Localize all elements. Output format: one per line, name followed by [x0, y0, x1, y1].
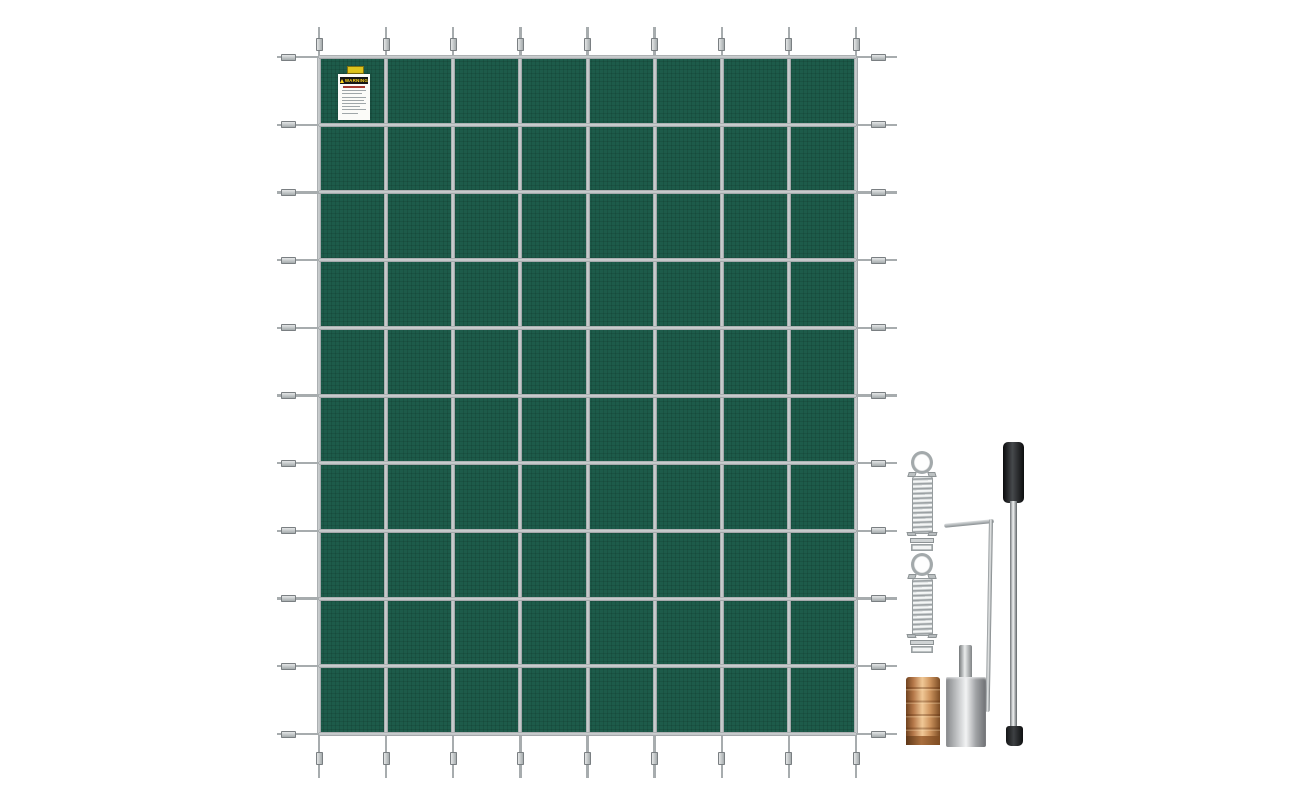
- strap-buckle: [316, 752, 323, 765]
- tool-stem: [959, 645, 972, 679]
- strap-buckle: [871, 663, 886, 670]
- warning-triangle-icon: [340, 79, 344, 83]
- strap-buckle: [281, 189, 296, 196]
- strap-buckle: [281, 257, 296, 264]
- hex-key-short-arm: [944, 519, 994, 527]
- strap-buckle: [281, 54, 296, 61]
- warning-label-tab: [347, 66, 364, 74]
- spring-tabs: [907, 634, 937, 639]
- strap-buckle: [281, 392, 296, 399]
- rod-handle: [1003, 442, 1024, 503]
- cover-strap-horizontal: [319, 461, 856, 465]
- cover-spring-2: [904, 553, 940, 653]
- cover-spring-1: [904, 451, 940, 551]
- strap-buckle: [785, 38, 792, 51]
- cover-strap-horizontal: [319, 597, 856, 601]
- strap-buckle: [584, 38, 591, 51]
- strap-buckle: [383, 752, 390, 765]
- hex-key-long-arm: [985, 519, 992, 712]
- cover-strap-horizontal: [319, 529, 856, 533]
- strap-buckle: [871, 460, 886, 467]
- strap-buckle: [450, 752, 457, 765]
- cover-strap-horizontal: [319, 732, 856, 736]
- brass-anchor: [906, 677, 940, 745]
- cover-strap-horizontal: [319, 123, 856, 127]
- warning-banner-text: WARNING: [345, 78, 368, 83]
- strap-buckle: [281, 324, 296, 331]
- strap-buckle: [281, 121, 296, 128]
- strap-buckle: [718, 752, 725, 765]
- strap-buckle: [718, 38, 725, 51]
- rod-tip: [1006, 726, 1023, 746]
- strap-buckle: [651, 752, 658, 765]
- cover-strap-horizontal: [319, 55, 856, 59]
- strap-buckle: [853, 38, 860, 51]
- spring-top-hooks: [908, 573, 936, 579]
- strap-buckle: [871, 324, 886, 331]
- strap-buckle: [871, 527, 886, 534]
- spring-clip: [910, 640, 934, 645]
- strap-buckle: [871, 731, 886, 738]
- strap-buckle: [281, 595, 296, 602]
- strap-buckle: [785, 752, 792, 765]
- product-photo-stage: WARNING: [0, 0, 1300, 800]
- tool-body: [946, 677, 986, 747]
- cover-strap-horizontal: [319, 664, 856, 668]
- warning-label: WARNING: [338, 74, 370, 120]
- label-fine-print-lines: [338, 90, 370, 113]
- spring-coil: [912, 476, 933, 534]
- label-headline-line: [343, 86, 365, 88]
- spring-tabs: [907, 532, 937, 537]
- strap-buckle: [871, 257, 886, 264]
- strap-buckle: [517, 38, 524, 51]
- strap-buckle: [651, 38, 658, 51]
- strap-buckle: [871, 595, 886, 602]
- spring-base: [911, 646, 933, 653]
- strap-buckle: [871, 54, 886, 61]
- strap-buckle: [281, 663, 296, 670]
- strap-buckle: [281, 527, 296, 534]
- strap-buckle: [871, 121, 886, 128]
- cover-strap-horizontal: [319, 190, 856, 194]
- strap-buckle: [281, 731, 296, 738]
- cover-strap-horizontal: [319, 258, 856, 262]
- spring-coil: [912, 578, 933, 636]
- spring-base: [911, 544, 933, 551]
- strap-buckle: [584, 752, 591, 765]
- strap-buckle: [281, 460, 296, 467]
- spring-clip: [910, 538, 934, 543]
- cover-strap-horizontal: [319, 326, 856, 330]
- spring-top-hooks: [908, 471, 936, 477]
- strap-buckle: [871, 392, 886, 399]
- strap-buckle: [316, 38, 323, 51]
- cover-strap-horizontal: [319, 394, 856, 398]
- strap-buckle: [450, 38, 457, 51]
- strap-buckle: [853, 752, 860, 765]
- strap-buckle: [871, 189, 886, 196]
- strap-buckle: [517, 752, 524, 765]
- strap-buckle: [383, 38, 390, 51]
- warning-banner: WARNING: [340, 77, 368, 84]
- rod-shaft: [1010, 501, 1017, 728]
